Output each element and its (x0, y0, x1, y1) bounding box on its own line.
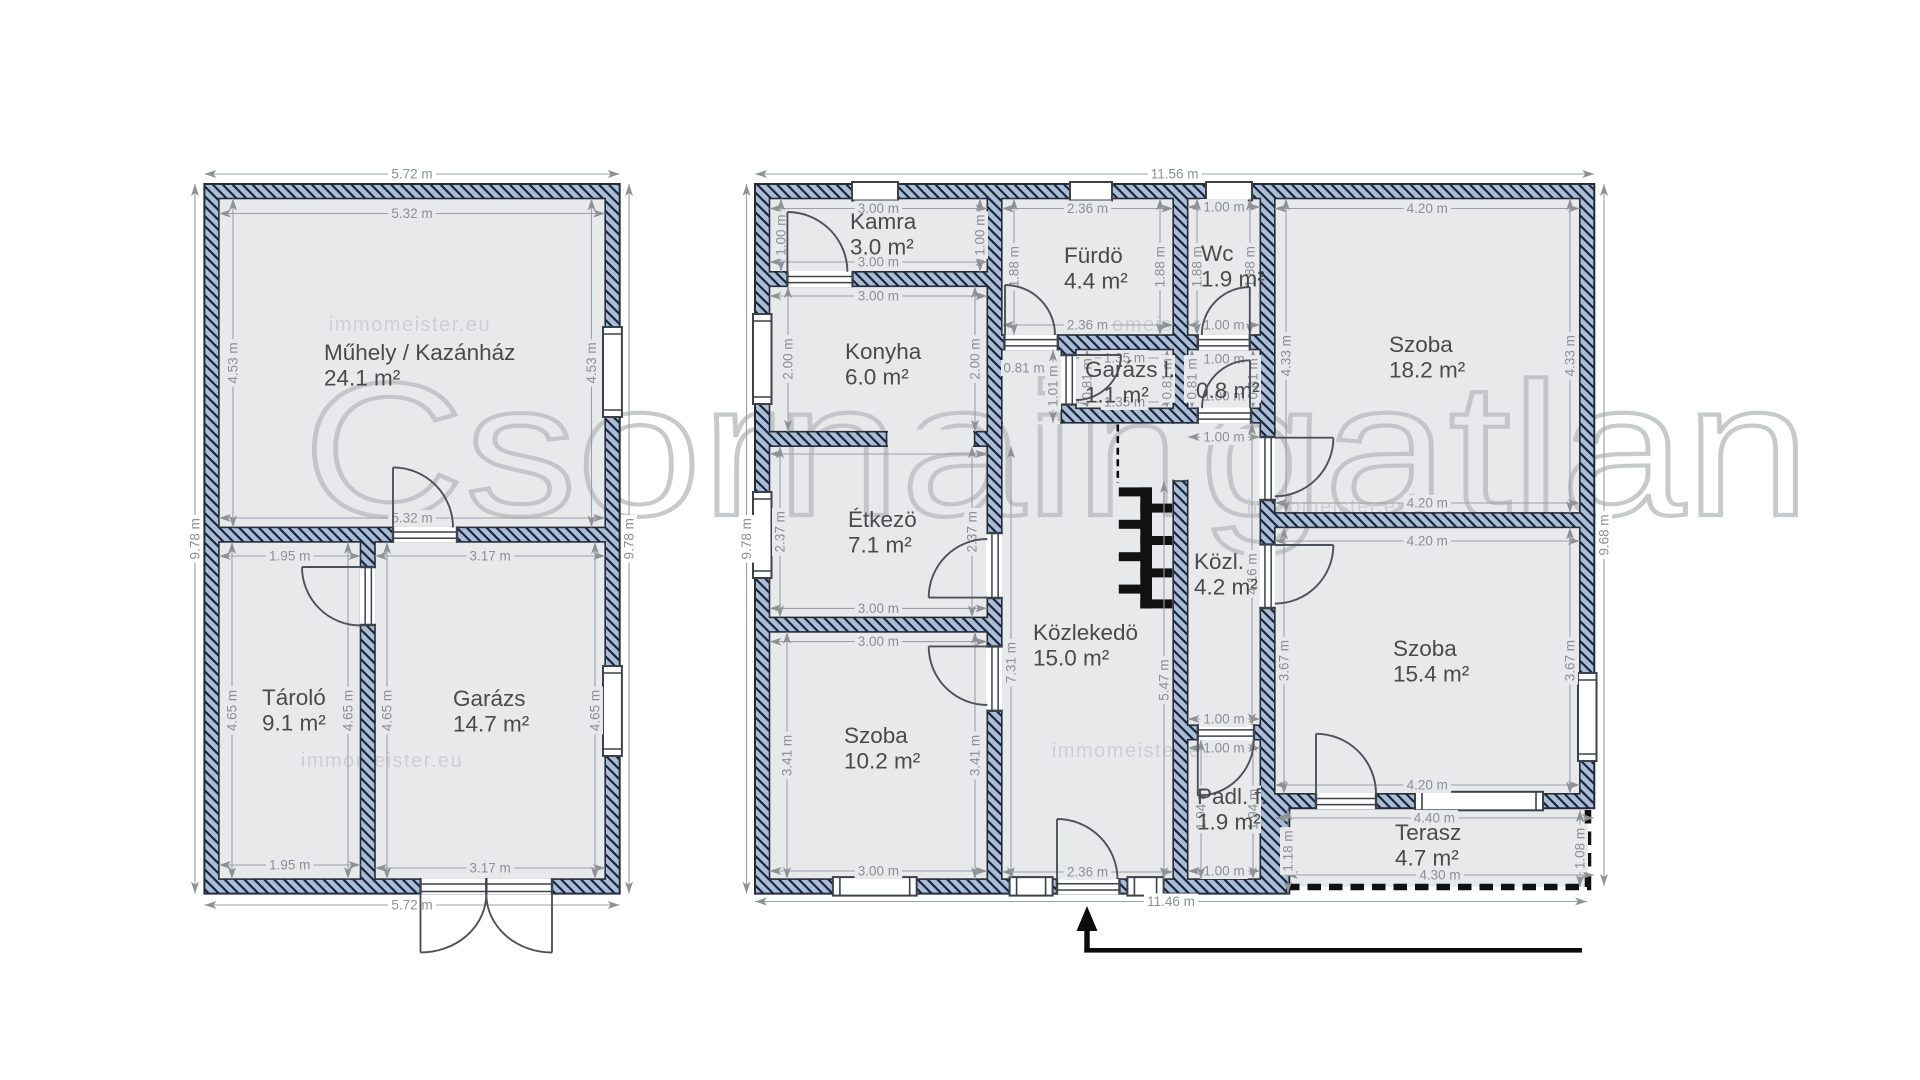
svg-text:Fürdö: Fürdö (1064, 243, 1123, 268)
svg-text:3.0 m²: 3.0 m² (850, 235, 914, 260)
svg-text:0.8 m²: 0.8 m² (1196, 378, 1260, 403)
svg-text:immomeister.eu: immomeister.eu (1052, 740, 1214, 762)
svg-text:1.18 m: 1.18 m (1281, 830, 1296, 871)
svg-text:4.53 m: 4.53 m (226, 342, 241, 383)
svg-text:3.17 m: 3.17 m (469, 549, 510, 564)
svg-text:5.72 m: 5.72 m (391, 898, 432, 913)
svg-text:4.53 m: 4.53 m (584, 342, 599, 383)
svg-text:9.1 m²: 9.1 m² (262, 711, 326, 736)
svg-text:1.00 m: 1.00 m (1203, 430, 1244, 445)
svg-text:Terasz: Terasz (1395, 820, 1461, 845)
svg-text:7.1 m²: 7.1 m² (848, 533, 912, 558)
svg-text:3.17 m: 3.17 m (469, 861, 510, 876)
svg-text:5.47 m: 5.47 m (1157, 659, 1172, 700)
svg-text:Szoba: Szoba (844, 723, 908, 748)
svg-text:10.2 m²: 10.2 m² (844, 749, 921, 774)
svg-text:1.00 m: 1.00 m (774, 215, 789, 256)
svg-text:4.2 m²: 4.2 m² (1194, 575, 1258, 600)
svg-text:1.1 m²: 1.1 m² (1085, 383, 1149, 408)
svg-text:3.00 m: 3.00 m (858, 634, 899, 649)
svg-text:5.32 m: 5.32 m (391, 511, 432, 526)
svg-text:0.81 m: 0.81 m (1003, 361, 1044, 376)
svg-text:18.2 m²: 18.2 m² (1389, 358, 1466, 383)
svg-text:2.36 m: 2.36 m (1067, 201, 1108, 216)
svg-text:Tároló: Tároló (262, 685, 326, 710)
svg-text:Közlekedö: Közlekedö (1033, 620, 1138, 645)
svg-text:24.1 m²: 24.1 m² (324, 366, 401, 391)
svg-text:1.00 m: 1.00 m (973, 215, 988, 256)
svg-text:9.78 m: 9.78 m (739, 518, 754, 559)
svg-text:Kamra: Kamra (850, 209, 917, 234)
svg-text:3.41 m: 3.41 m (780, 735, 795, 776)
svg-text:4.20 m: 4.20 m (1407, 496, 1448, 511)
svg-text:1.00 m: 1.00 m (1203, 200, 1244, 215)
svg-text:2.00 m: 2.00 m (968, 338, 983, 379)
svg-text:3.67 m: 3.67 m (1277, 640, 1292, 681)
svg-text:4.65 m: 4.65 m (225, 690, 240, 731)
svg-text:immomeister.eu: immomeister.eu (301, 750, 463, 772)
svg-text:3.41 m: 3.41 m (968, 735, 983, 776)
svg-text:4.33 m: 4.33 m (1563, 335, 1578, 376)
svg-text:1.00 m: 1.00 m (1203, 741, 1244, 756)
svg-text:immomeister.eu: immomeister.eu (329, 314, 491, 336)
svg-text:15.0 m²: 15.0 m² (1033, 646, 1110, 671)
svg-text:1.88 m: 1.88 m (1007, 246, 1022, 287)
svg-text:15.4 m²: 15.4 m² (1393, 662, 1470, 687)
svg-text:1.95 m: 1.95 m (269, 549, 310, 564)
svg-text:4.65 m: 4.65 m (588, 690, 603, 731)
svg-text:Konyha: Konyha (845, 339, 922, 364)
svg-text:Szoba: Szoba (1389, 332, 1453, 357)
svg-text:1.00 m: 1.00 m (1203, 318, 1244, 333)
svg-text:5.32 m: 5.32 m (391, 206, 432, 221)
svg-text:1.95 m: 1.95 m (269, 858, 310, 873)
svg-text:4.65 m: 4.65 m (341, 690, 356, 731)
svg-text:11.46 m: 11.46 m (1147, 894, 1195, 909)
svg-text:4.33 m: 4.33 m (1279, 335, 1294, 376)
svg-text:4.4 m²: 4.4 m² (1064, 269, 1128, 294)
svg-text:1.00 m: 1.00 m (1203, 352, 1244, 367)
svg-text:9.68 m: 9.68 m (1597, 514, 1612, 555)
svg-text:4.20 m: 4.20 m (1407, 778, 1448, 793)
svg-text:Garázs l.: Garázs l. (1085, 357, 1175, 382)
svg-text:1.08 m: 1.08 m (1573, 828, 1588, 869)
svg-text:2.37 m: 2.37 m (965, 511, 980, 552)
svg-text:Szoba: Szoba (1393, 636, 1457, 661)
svg-text:3.67 m: 3.67 m (1563, 640, 1578, 681)
svg-text:6.0 m²: 6.0 m² (845, 365, 909, 390)
svg-text:1.9 m²: 1.9 m² (1201, 267, 1265, 292)
svg-text:Étkezö: Étkezö (848, 507, 917, 532)
svg-text:2.37 m: 2.37 m (773, 511, 788, 552)
svg-text:1.01 m: 1.01 m (1046, 366, 1061, 407)
svg-text:2.36 m: 2.36 m (1067, 318, 1108, 333)
svg-text:11.56 m: 11.56 m (1151, 167, 1199, 182)
svg-text:4.65 m: 4.65 m (380, 690, 395, 731)
svg-text:4.20 m: 4.20 m (1407, 534, 1448, 549)
svg-text:Közl.: Közl. (1194, 549, 1244, 574)
svg-text:9.78 m: 9.78 m (622, 518, 637, 559)
svg-text:Garázs: Garázs (453, 686, 526, 711)
svg-text:1.00 m: 1.00 m (1203, 864, 1244, 879)
svg-text:3.00 m: 3.00 m (858, 601, 899, 616)
svg-text:14.7 m²: 14.7 m² (453, 712, 530, 737)
svg-text:1.9 m²: 1.9 m² (1197, 810, 1261, 835)
svg-text:1.00 m: 1.00 m (1203, 712, 1244, 727)
svg-text:1.88 m: 1.88 m (1153, 246, 1168, 287)
svg-text:Wc: Wc (1201, 241, 1234, 266)
svg-text:3.00 m: 3.00 m (858, 864, 899, 879)
svg-text:3.00 m: 3.00 m (858, 289, 899, 304)
svg-text:7.31 m: 7.31 m (1004, 642, 1019, 683)
svg-text:5.72 m: 5.72 m (391, 167, 432, 182)
svg-text:4.20 m: 4.20 m (1407, 201, 1448, 216)
svg-text:2.00 m: 2.00 m (781, 338, 796, 379)
svg-text:Műhely / Kazánház: Műhely / Kazánház (324, 340, 515, 365)
svg-text:Padl. f.: Padl. f. (1197, 784, 1267, 809)
svg-text:4.7 m²: 4.7 m² (1395, 846, 1459, 871)
svg-text:2.36 m: 2.36 m (1067, 865, 1108, 880)
svg-text:9.78 m: 9.78 m (188, 518, 203, 559)
